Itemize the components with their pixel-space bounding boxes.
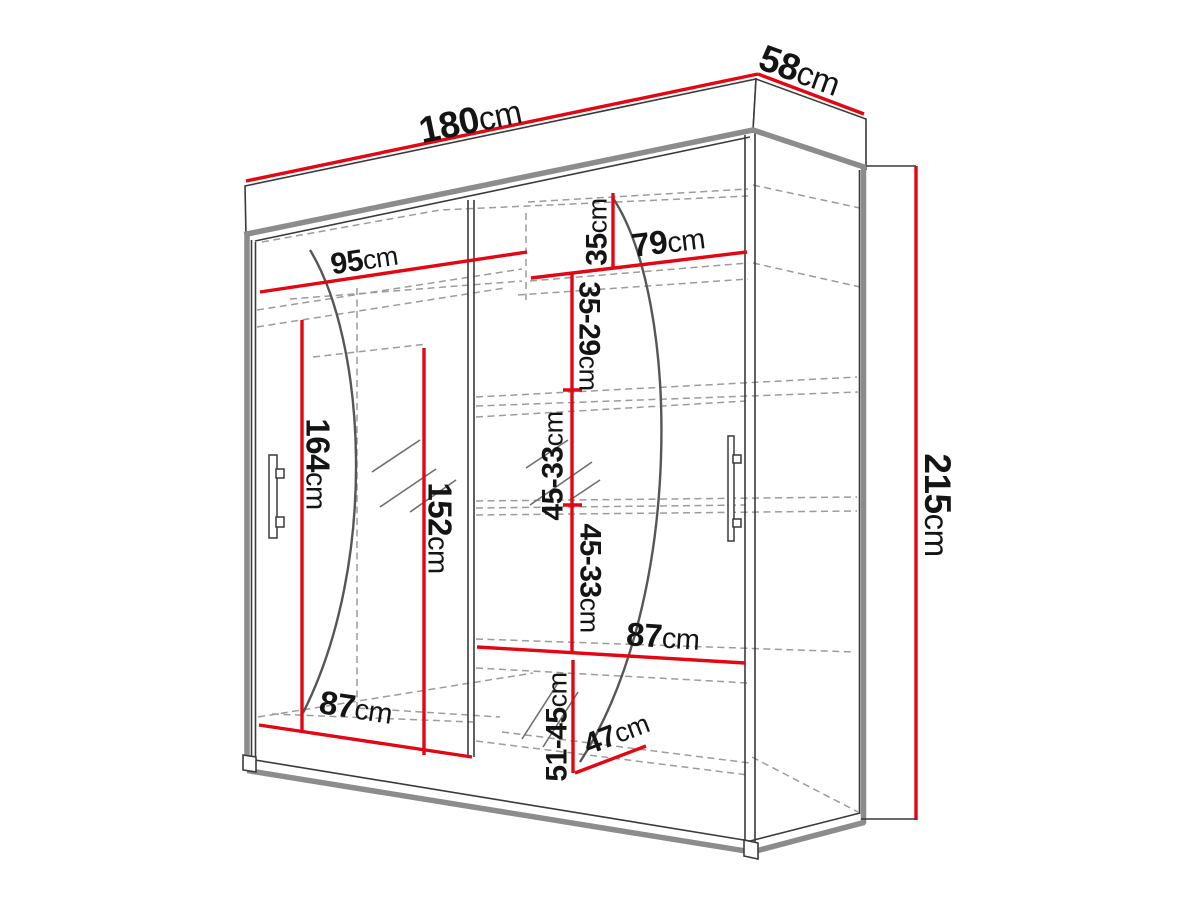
left-foot: [243, 755, 256, 772]
wardrobe-dimension-diagram: 180cm 58cm 215cm 95cm 79cm 35cm 35-29cm …: [0, 0, 1200, 899]
dimension-line-87-bottom: [259, 725, 472, 757]
dim-label-87-middle: 87cm: [625, 615, 701, 656]
right-door-handle: [728, 436, 741, 541]
door-decor-arcs: [303, 198, 661, 762]
dim-label-164: 164cm: [299, 418, 336, 509]
dim-label-51-45: 51-45cm: [541, 672, 574, 781]
dim-label-45-33-upper: 45-33cm: [537, 411, 570, 520]
dim-label-152: 152cm: [421, 482, 458, 573]
dimension-line-87-middle: [477, 647, 745, 663]
dim-label-35: 35cm: [581, 198, 614, 265]
cornice: [245, 79, 866, 236]
dim-label-45-33-lower: 45-33cm: [574, 523, 607, 632]
right-foot: [744, 840, 758, 859]
dim-label-87-bottom: 87cm: [317, 683, 395, 730]
dim-label-35-29: 35-29cm: [573, 281, 606, 390]
dim-label-47: 47cm: [579, 706, 654, 761]
dim-label-95: 95cm: [328, 239, 400, 282]
diagram-canvas: 180cm 58cm 215cm 95cm 79cm 35cm 35-29cm …: [0, 0, 1200, 899]
dim-label-height-215: 215cm: [917, 453, 958, 556]
left-door-handle: [269, 455, 284, 538]
door-handles: [269, 436, 741, 541]
